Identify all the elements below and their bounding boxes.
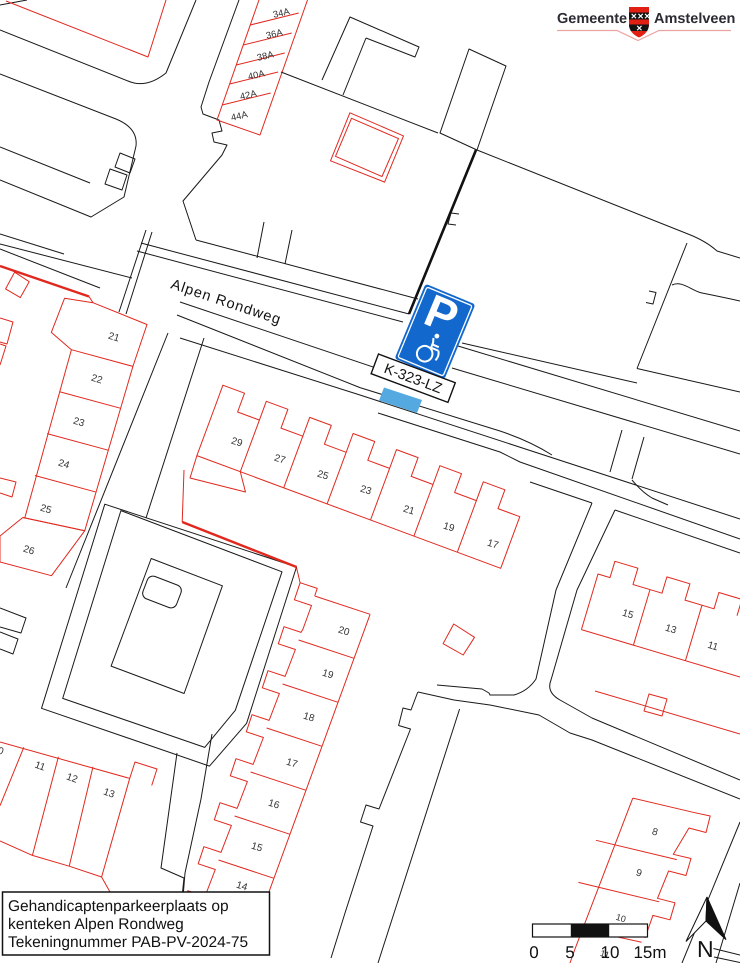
svg-text:N: N <box>697 936 714 962</box>
svg-text:10: 10 <box>601 943 620 962</box>
svg-text:Gehandicaptenparkeerplaats op: Gehandicaptenparkeerplaats op <box>8 898 229 915</box>
svg-text:5: 5 <box>565 943 574 962</box>
svg-text:✕✕✕: ✕✕✕ <box>631 12 651 21</box>
svg-text:kenteken Alpen Rondweg: kenteken Alpen Rondweg <box>8 916 184 933</box>
svg-text:0: 0 <box>529 943 538 962</box>
svg-text:15m: 15m <box>633 943 666 962</box>
svg-text:Tekeningnummer PAB-PV-2024-75: Tekeningnummer PAB-PV-2024-75 <box>8 934 248 951</box>
svg-text:Gemeente: Gemeente <box>557 11 627 27</box>
svg-text:✕: ✕ <box>636 24 643 33</box>
svg-text:Amstelveen: Amstelveen <box>654 11 735 27</box>
